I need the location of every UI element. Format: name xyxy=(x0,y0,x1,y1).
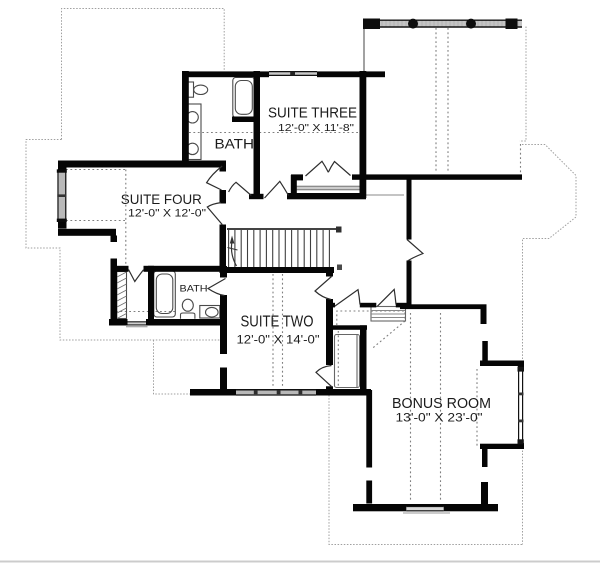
svg-text:SUITE TWO: SUITE TWO xyxy=(241,314,314,331)
svg-text:12'-0" X 12'-0": 12'-0" X 12'-0" xyxy=(128,208,206,220)
svg-text:12'-0" X 14'-0": 12'-0" X 14'-0" xyxy=(237,333,320,347)
svg-text:13'-0" X 23'-0": 13'-0" X 23'-0" xyxy=(396,413,483,425)
svg-text:BATH: BATH xyxy=(215,136,255,152)
svg-text:12'-0" X 11'-8": 12'-0" X 11'-8" xyxy=(278,122,354,134)
svg-text:BATH: BATH xyxy=(180,284,208,295)
svg-text:SUITE FOUR: SUITE FOUR xyxy=(121,191,202,207)
svg-text:BONUS ROOM: BONUS ROOM xyxy=(392,396,491,412)
svg-text:SUITE THREE: SUITE THREE xyxy=(268,105,357,122)
